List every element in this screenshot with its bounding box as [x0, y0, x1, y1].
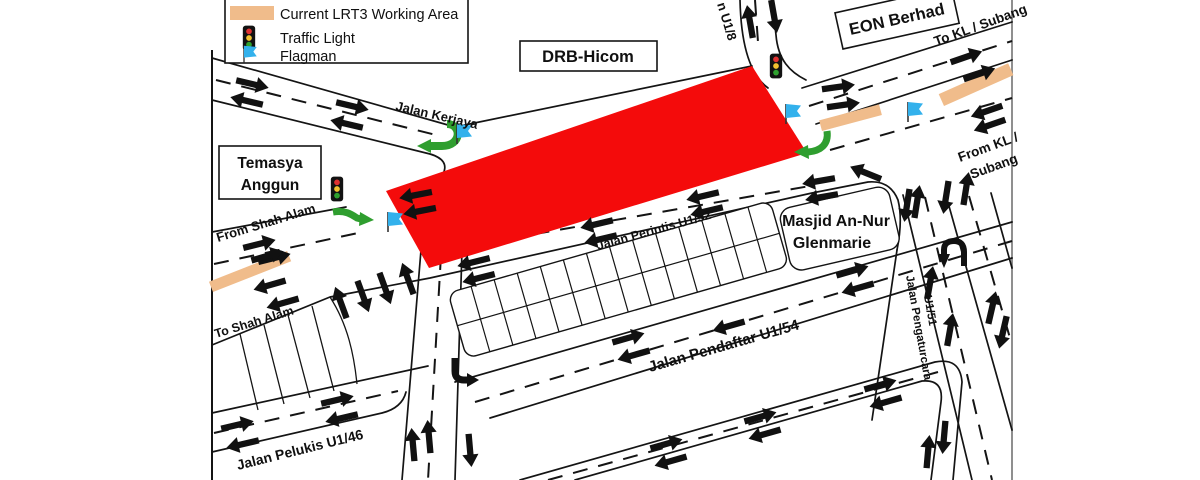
- road-pelukis-north-edge: [212, 366, 428, 413]
- label-temasya-line1: Temasya: [237, 155, 303, 172]
- diversion-arrow-left-junction: [333, 211, 374, 226]
- label-masjid-line1: Masjid An-Nur: [782, 213, 890, 230]
- label-to-shah-alam: To Shah Alam: [213, 304, 295, 341]
- legend-working-area-swatch: [230, 6, 274, 20]
- legend-traffic-light-label: Traffic Light: [280, 31, 355, 47]
- map-canvas: Jalan Kerjaya From Shah Alam To Shah Ala…: [0, 0, 1200, 480]
- road-kl-lane5: [991, 193, 1012, 268]
- legend: Current LRT3 Working Area Traffic Light …: [225, 0, 468, 65]
- road-kl-lane1: [903, 195, 972, 480]
- u-turn-arrow-kl: [938, 241, 964, 268]
- flagman-flag-tokl: [908, 102, 923, 122]
- label-persiaran-u18: n U1/8: [714, 0, 740, 42]
- label-masjid-line2: Glenmarie: [793, 235, 871, 252]
- traffic-light-left-junction: [331, 177, 343, 202]
- traffic-plan-map: Jalan Kerjaya From Shah Alam To Shah Ala…: [0, 0, 1200, 480]
- label-drb-hicom: DRB-Hicom: [542, 48, 634, 66]
- legend-flagman-label: Flagman: [280, 49, 336, 65]
- working-area-strip-tokl: [939, 63, 1014, 106]
- road-south-parallel-north-edge: [520, 361, 962, 480]
- label-temasya-line2: Anggun: [241, 177, 300, 194]
- traffic-light-top-junction: [770, 54, 782, 79]
- label-jalan-pelukis: Jalan Pelukis U1/46: [235, 426, 365, 473]
- legend-working-area-label: Current LRT3 Working Area: [280, 7, 459, 23]
- diversion-uturn-arrow-kerjaya: [417, 124, 458, 153]
- flagman-flag-east-junction: [786, 104, 801, 124]
- flagman-flag-left-junction: [388, 212, 403, 232]
